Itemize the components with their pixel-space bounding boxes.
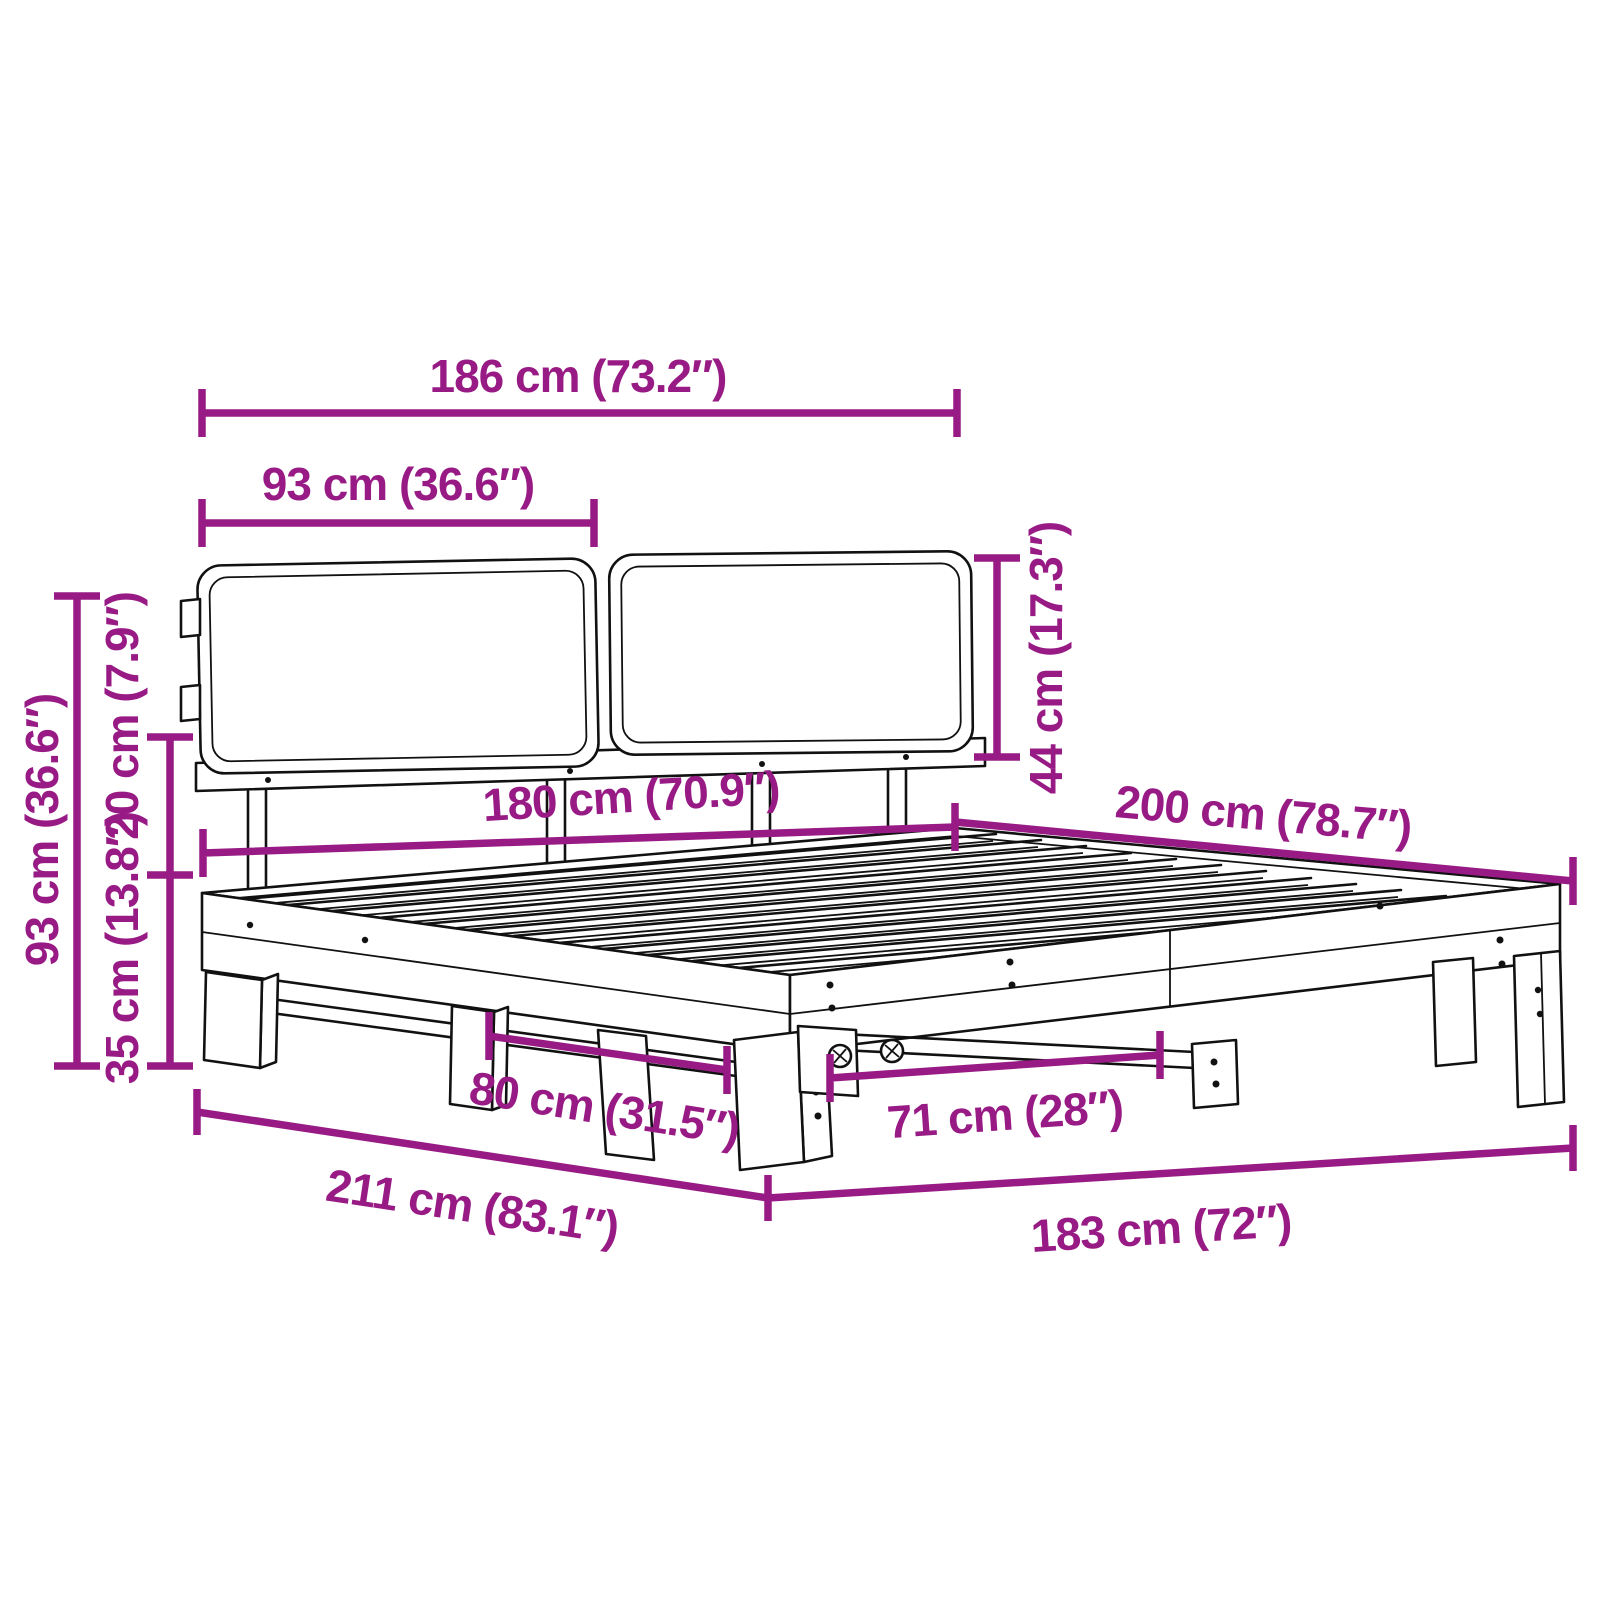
dim-cushion-width: 93 cm (36.6″) <box>202 458 594 547</box>
dim-label-overall-height: 93 cm (36.6″) <box>16 694 68 966</box>
dim-label-cushion-width: 93 cm (36.6″) <box>262 458 534 510</box>
dim-overall-height: 93 cm (36.6″) <box>16 596 100 1066</box>
dim-label-headboard-clearance: 20 cm (7.9″) <box>96 592 148 840</box>
bed-leg-head-left <box>204 972 278 1068</box>
diagram-page: 186 cm (73.2″) 93 cm (36.6″) 44 cm (17.3… <box>0 0 1600 1600</box>
dim-label-base-height: 35 cm (13.8″) <box>96 812 148 1084</box>
dim-label-cushion-height: 44 cm (17.3″) <box>1020 522 1072 794</box>
bolt-head-right <box>881 1040 903 1062</box>
bed-leg-foot-mid <box>1433 958 1476 1066</box>
dim-overall-width: 186 cm (73.2″) <box>202 350 957 437</box>
dim-label-leg-spacing-foot: 71 cm (28″) <box>885 1080 1124 1148</box>
headboard-bracket-top <box>181 599 200 637</box>
dim-label-footprint-width: 183 cm (72″) <box>1029 1194 1292 1262</box>
bed-leg-foot-right <box>1514 951 1564 1107</box>
headboard-cushion-right <box>609 551 973 755</box>
beam-bracket-right <box>1192 1040 1238 1108</box>
dim-headboard-clearance-and-base-height: 20 cm (7.9″) 35 cm (13.8″) <box>96 592 193 1084</box>
dim-label-overall-width: 186 cm (73.2″) <box>430 350 727 402</box>
bed-dimension-diagram: 186 cm (73.2″) 93 cm (36.6″) 44 cm (17.3… <box>0 0 1600 1600</box>
dim-cushion-height: 44 cm (17.3″) <box>974 522 1072 794</box>
headboard-cushion-left <box>197 558 599 774</box>
headboard-bracket-bottom <box>181 685 200 721</box>
